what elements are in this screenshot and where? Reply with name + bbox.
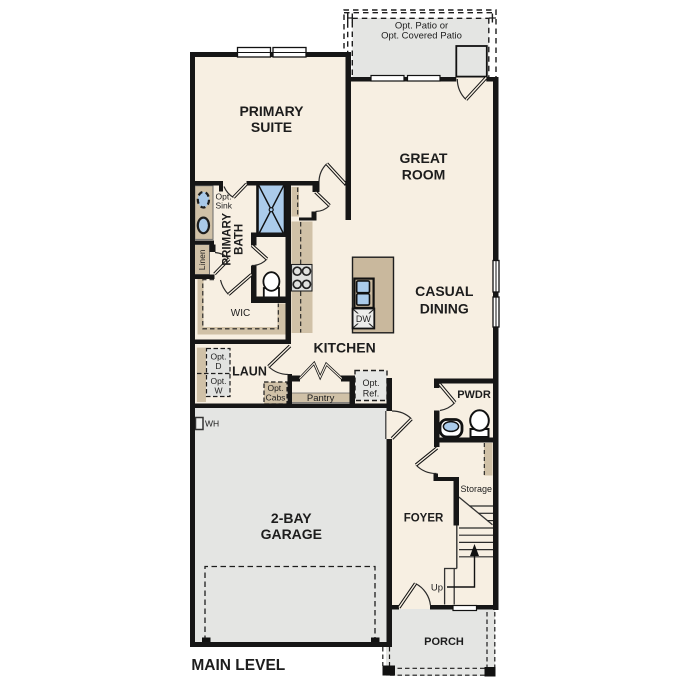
svg-text:Opt.: Opt. — [210, 376, 226, 386]
svg-text:Opt.: Opt. — [362, 378, 379, 388]
svg-text:KITCHEN: KITCHEN — [313, 340, 375, 356]
svg-text:ROOM: ROOM — [402, 166, 446, 182]
svg-text:Cabs: Cabs — [266, 393, 286, 403]
svg-text:PRIMARY: PRIMARY — [239, 103, 304, 119]
svg-text:CASUAL: CASUAL — [415, 283, 474, 299]
svg-text:DW: DW — [356, 314, 371, 324]
svg-text:Opt.: Opt. — [267, 383, 283, 393]
svg-text:GARAGE: GARAGE — [261, 526, 322, 542]
svg-text:GREAT: GREAT — [400, 150, 448, 166]
svg-text:SUITE: SUITE — [251, 119, 292, 135]
svg-text:W: W — [214, 386, 222, 396]
svg-text:BATH: BATH — [234, 224, 246, 255]
svg-text:Sink: Sink — [216, 201, 233, 211]
svg-text:Opt. Covered Patio: Opt. Covered Patio — [381, 31, 462, 42]
svg-text:PRIMARY: PRIMARY — [222, 213, 234, 266]
svg-text:D: D — [215, 361, 221, 371]
svg-text:Storage: Storage — [461, 484, 493, 494]
svg-text:Linen: Linen — [197, 249, 207, 270]
svg-text:FOYER: FOYER — [404, 513, 444, 525]
svg-text:PWDR: PWDR — [457, 389, 491, 401]
svg-text:Ref.: Ref. — [363, 389, 380, 399]
svg-text:Pantry: Pantry — [307, 393, 335, 404]
svg-text:Up: Up — [431, 583, 443, 594]
svg-text:2-BAY: 2-BAY — [271, 510, 312, 526]
svg-text:MAIN LEVEL: MAIN LEVEL — [191, 657, 285, 674]
svg-text:Opt.: Opt. — [210, 352, 226, 362]
svg-text:DINING: DINING — [420, 301, 469, 317]
svg-text:LAUN: LAUN — [232, 364, 267, 378]
svg-text:PORCH: PORCH — [424, 636, 464, 648]
svg-text:WH: WH — [205, 419, 219, 429]
svg-text:WIC: WIC — [231, 308, 250, 319]
